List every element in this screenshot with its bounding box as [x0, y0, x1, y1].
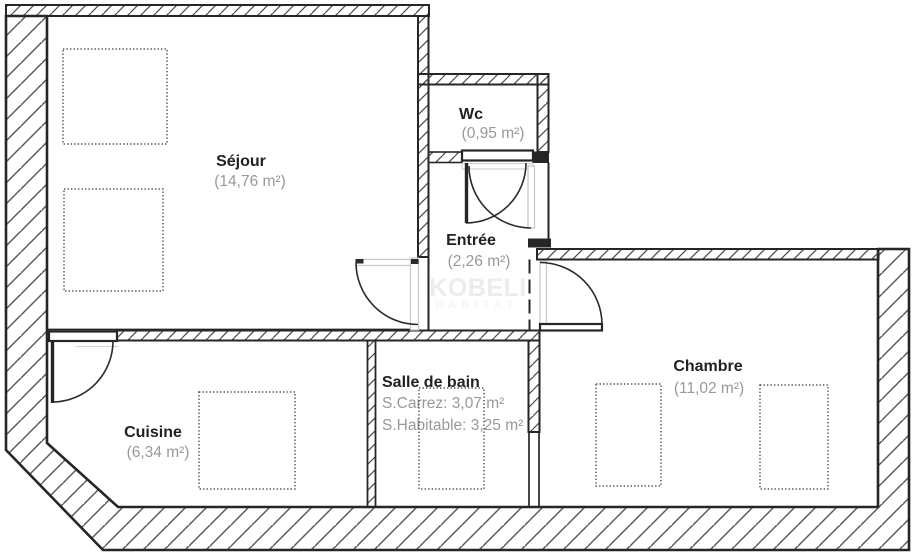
svg-text:(2,26 m²): (2,26 m²)	[448, 253, 511, 270]
svg-text:Entrée: Entrée	[446, 232, 496, 249]
svg-text:(0,95 m²): (0,95 m²)	[462, 125, 525, 142]
svg-text:(6,34 m²): (6,34 m²)	[127, 444, 190, 461]
svg-text:HABITAT: HABITAT	[435, 299, 518, 311]
svg-text:Séjour: Séjour	[216, 153, 266, 170]
svg-text:Wc: Wc	[459, 106, 483, 123]
svg-text:S.Carrez: 3,07 m²: S.Carrez: 3,07 m²	[382, 395, 504, 412]
svg-text:(11,02 m²): (11,02 m²)	[674, 380, 744, 397]
svg-text:Chambre: Chambre	[673, 358, 742, 375]
svg-text:S.Habitable: 3,25 m²: S.Habitable: 3,25 m²	[382, 417, 523, 434]
svg-text:Cuisine: Cuisine	[124, 424, 182, 441]
svg-text:(14,76 m²): (14,76 m²)	[214, 173, 286, 190]
svg-text:KOBELI: KOBELI	[429, 274, 526, 302]
